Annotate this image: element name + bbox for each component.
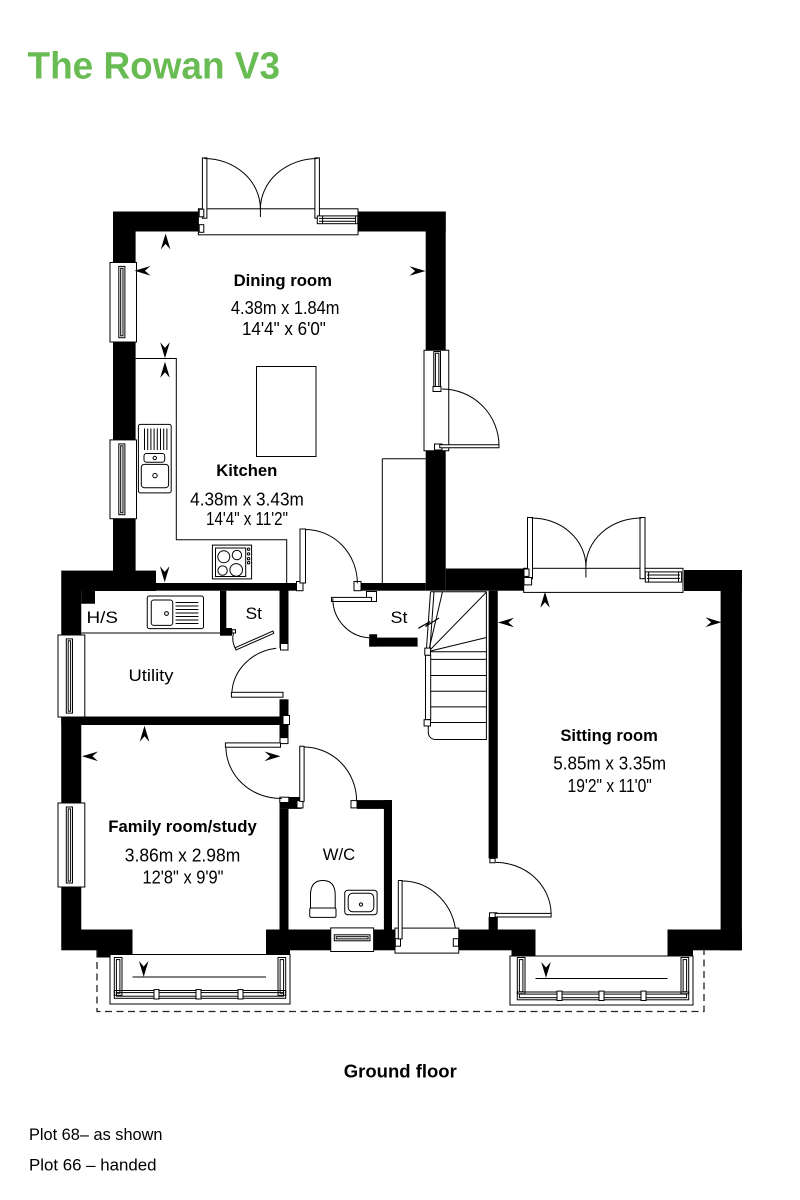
- svg-text:12'8" x 9'9": 12'8" x 9'9": [143, 868, 224, 888]
- svg-text:19'2" x 11'0": 19'2" x 11'0": [568, 776, 652, 796]
- svg-text:14'4" x 6'0": 14'4" x 6'0": [242, 319, 326, 339]
- svg-text:Dining room: Dining room: [234, 271, 332, 290]
- svg-text:Utility: Utility: [129, 666, 175, 685]
- svg-text:H/S: H/S: [87, 608, 119, 627]
- svg-text:Sitting room: Sitting room: [560, 726, 657, 745]
- svg-text:5.85m x 3.35m: 5.85m x 3.35m: [553, 754, 666, 774]
- svg-text:W/C: W/C: [323, 845, 355, 864]
- svg-text:Plot 66 – handed: Plot 66 – handed: [29, 1157, 157, 1175]
- svg-text:St: St: [246, 604, 263, 623]
- svg-text:Kitchen: Kitchen: [216, 461, 277, 480]
- svg-text:Plot 68– as shown: Plot 68– as shown: [29, 1126, 163, 1144]
- svg-text:4.38m x 1.84m: 4.38m x 1.84m: [231, 298, 340, 318]
- svg-text:14'4" x 11'2": 14'4" x 11'2": [206, 509, 288, 529]
- svg-text:3.86m x 2.98m: 3.86m x 2.98m: [125, 846, 241, 866]
- svg-text:St: St: [391, 608, 408, 627]
- svg-text:Family room/study: Family room/study: [108, 817, 257, 836]
- svg-text:The Rowan V3: The Rowan V3: [28, 46, 281, 88]
- svg-text:4.38m x 3.43m: 4.38m x 3.43m: [190, 490, 304, 510]
- svg-text:Ground floor: Ground floor: [344, 1061, 457, 1082]
